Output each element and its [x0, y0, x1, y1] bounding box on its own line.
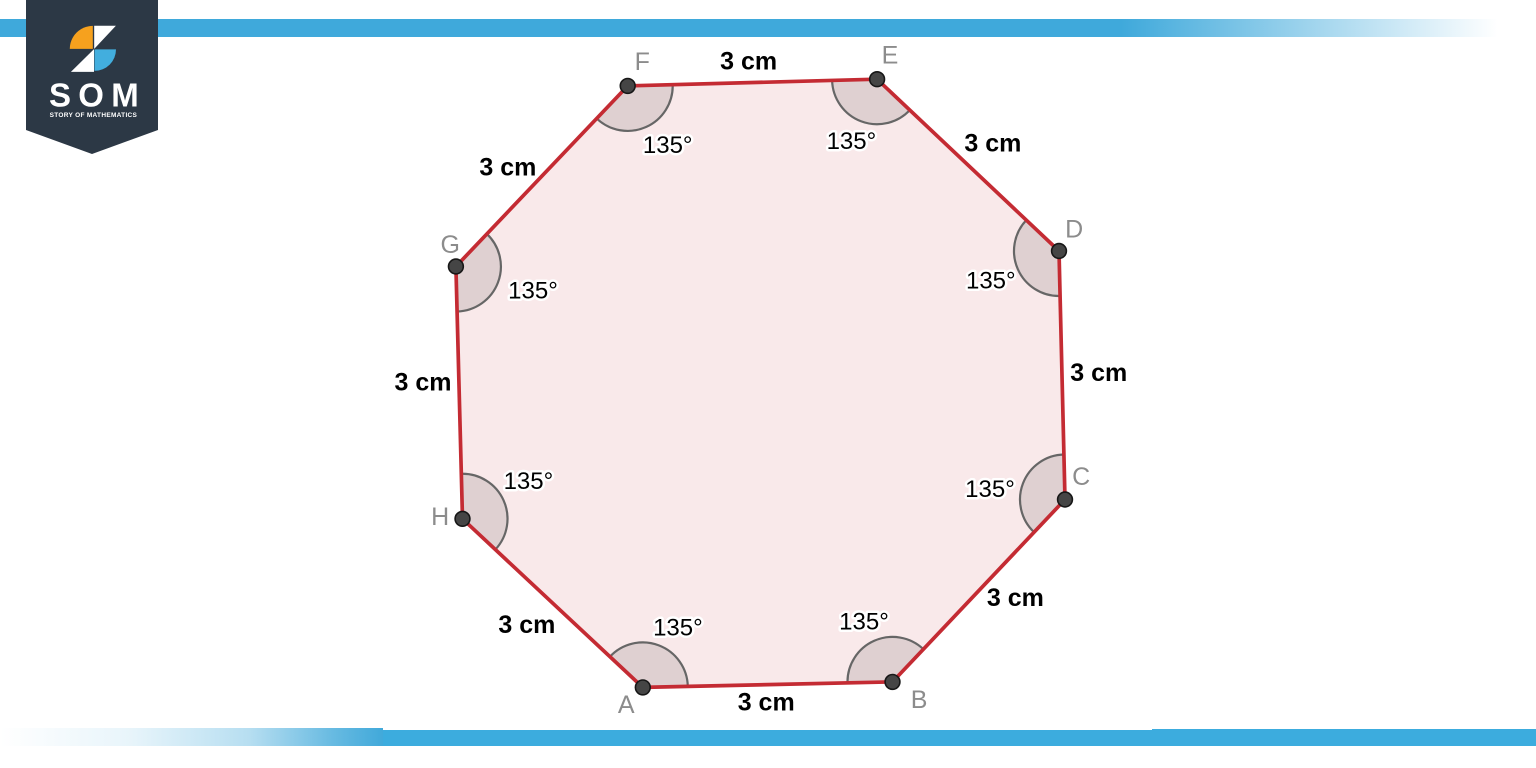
svg-text:135°: 135°: [508, 277, 558, 304]
svg-text:A: A: [618, 691, 635, 719]
svg-text:F: F: [635, 48, 650, 76]
svg-text:3 cm: 3 cm: [720, 48, 777, 76]
svg-text:135°: 135°: [839, 608, 889, 635]
svg-text:B: B: [911, 686, 928, 714]
svg-text:C: C: [1072, 463, 1090, 491]
svg-text:E: E: [882, 42, 899, 70]
svg-text:135°: 135°: [653, 614, 703, 641]
svg-text:3 cm: 3 cm: [987, 584, 1044, 612]
svg-text:135°: 135°: [965, 476, 1015, 503]
svg-text:3 cm: 3 cm: [395, 369, 452, 397]
svg-text:135°: 135°: [504, 468, 554, 495]
svg-text:G: G: [440, 231, 459, 259]
svg-text:135°: 135°: [827, 128, 877, 155]
svg-text:135°: 135°: [966, 268, 1016, 295]
svg-text:3 cm: 3 cm: [964, 129, 1021, 157]
svg-text:D: D: [1065, 216, 1083, 244]
svg-text:3 cm: 3 cm: [479, 154, 536, 182]
svg-text:3 cm: 3 cm: [1070, 359, 1127, 387]
svg-text:3 cm: 3 cm: [738, 689, 795, 717]
svg-text:135°: 135°: [643, 132, 693, 159]
svg-text:H: H: [431, 503, 449, 531]
svg-text:3 cm: 3 cm: [498, 611, 555, 639]
